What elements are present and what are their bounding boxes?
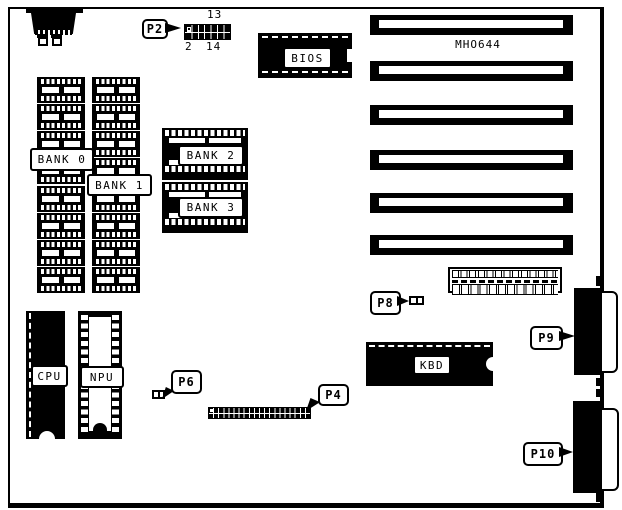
p2-callout-arrow-icon — [165, 23, 181, 33]
expansion-slot-6 — [370, 235, 573, 255]
power-pin-row-top — [452, 270, 558, 278]
bios-chip: BIOS — [258, 33, 352, 78]
p10-connector — [573, 401, 602, 493]
kbd-label: KBD — [413, 355, 451, 375]
bank1-label: BANK 1 — [87, 174, 152, 196]
bank2-label: BANK 2 — [178, 145, 244, 166]
memory-chip — [37, 213, 85, 239]
p8-callout-arrow-icon — [397, 296, 409, 306]
power-connector — [448, 267, 562, 293]
expansion-slot-2 — [370, 61, 573, 81]
edge-tab — [596, 276, 604, 286]
kbd-chip: KBD — [366, 342, 493, 386]
expansion-slot-5 — [370, 193, 573, 213]
expansion-slot-3 — [370, 105, 573, 125]
memory-chip — [37, 267, 85, 293]
p2-header — [184, 24, 231, 40]
bios-dashed-line — [262, 71, 348, 73]
cpu-notch — [39, 431, 55, 439]
p2-pin2-label: 2 — [185, 41, 193, 52]
bios-dashed-line — [262, 36, 348, 38]
power-pin-row-bottom — [452, 284, 558, 295]
p4-pin1-marker — [210, 409, 213, 412]
edge-tab — [596, 389, 604, 397]
memory-chip — [37, 77, 85, 103]
p4-callout-label: P4 — [318, 384, 349, 406]
bios-notch — [347, 49, 352, 62]
kbd-notch — [486, 357, 493, 371]
p2-pin14-label: 14 — [206, 41, 221, 52]
motherboard-diagram: P2 13 2 14 BIOS MHO644 BANK 0 BANK 1 BAN… — [0, 0, 622, 510]
model-label: MHO644 — [448, 39, 508, 50]
p10-callout-label: P10 — [523, 442, 563, 466]
memory-chip — [37, 186, 85, 212]
bank3-module: BANK 3 — [162, 182, 248, 233]
din-connector-foot — [52, 37, 62, 46]
p9-connector — [574, 288, 602, 375]
cpu-chip: CPU — [26, 311, 65, 439]
edge-tab — [596, 493, 604, 502]
bank2-module: BANK 2 — [162, 128, 248, 180]
bank3-label: BANK 3 — [178, 197, 244, 218]
cpu-label: CPU — [31, 365, 68, 387]
memory-chip — [92, 267, 140, 293]
memory-chip — [92, 77, 140, 103]
expansion-slot-1 — [370, 15, 573, 35]
memory-chip — [92, 104, 140, 130]
power-divider — [452, 280, 558, 283]
p2-pin1-marker — [187, 27, 191, 32]
p8-jumper — [409, 296, 424, 305]
memory-chip — [92, 213, 140, 239]
din-connector-foot — [38, 37, 48, 46]
memory-chip — [92, 131, 140, 157]
bank0-label: BANK 0 — [30, 148, 94, 171]
p10-callout-arrow-icon — [559, 447, 573, 457]
expansion-slot-4 — [370, 150, 573, 170]
edge-tab — [596, 378, 604, 386]
npu-notch — [93, 423, 107, 431]
p6-callout-label: P6 — [171, 370, 202, 394]
din-connector-top — [26, 7, 83, 13]
kbd-dashed-line — [369, 345, 490, 347]
p2-pin13-label: 13 — [207, 9, 222, 20]
memory-chip — [37, 104, 85, 130]
memory-chip — [37, 240, 85, 266]
memory-chip — [92, 240, 140, 266]
p10-connector-shell — [599, 408, 619, 491]
npu-socket: NPU — [78, 311, 122, 439]
p4-header — [208, 407, 311, 419]
p9-callout-arrow-icon — [559, 331, 575, 341]
bios-label: BIOS — [283, 47, 332, 69]
npu-label: NPU — [80, 366, 124, 388]
din-keyboard-connector — [26, 7, 83, 47]
